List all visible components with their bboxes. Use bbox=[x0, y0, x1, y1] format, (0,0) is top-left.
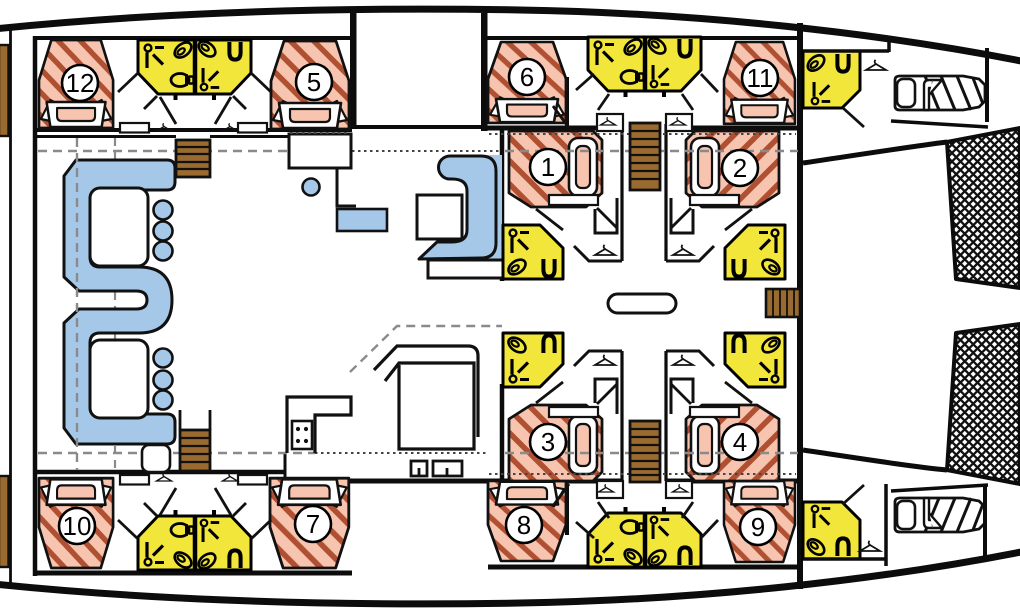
svg-text:11: 11 bbox=[747, 63, 774, 93]
svg-text:3: 3 bbox=[541, 427, 555, 457]
svg-text:2: 2 bbox=[733, 153, 747, 183]
svg-text:7: 7 bbox=[306, 509, 320, 539]
svg-text:6: 6 bbox=[520, 62, 534, 92]
svg-text:4: 4 bbox=[733, 427, 747, 457]
svg-text:1: 1 bbox=[541, 152, 555, 182]
svg-text:8: 8 bbox=[517, 510, 531, 540]
svg-text:12: 12 bbox=[66, 68, 95, 98]
svg-text:10: 10 bbox=[63, 511, 92, 541]
svg-text:9: 9 bbox=[751, 512, 765, 542]
svg-text:5: 5 bbox=[307, 67, 321, 97]
